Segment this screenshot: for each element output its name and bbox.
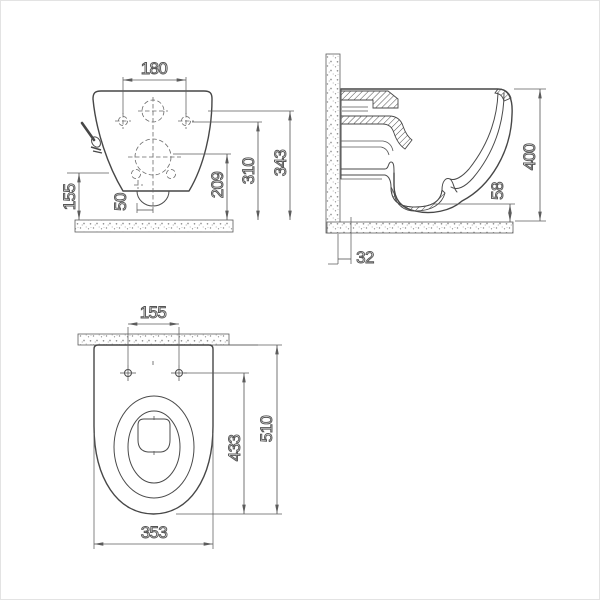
side-bowl-inner-curve-2	[450, 93, 498, 180]
dim-label-310: 310	[239, 158, 258, 185]
front-floor-section	[75, 220, 233, 232]
side-section-view: 400 58 32	[326, 54, 546, 267]
dim-label-155-front: 155	[60, 184, 79, 211]
side-hatch-trap-bottom	[391, 187, 445, 211]
dim-label-433: 433	[225, 435, 244, 462]
front-view: 180 155 50 209 310 343	[60, 59, 294, 232]
front-fixing-hole-right	[178, 113, 194, 129]
side-bowl-inner-curve	[451, 93, 504, 189]
front-flush-lever	[82, 123, 102, 153]
dim-label-510: 510	[257, 416, 276, 443]
plan-wall-section	[78, 334, 229, 345]
dim-label-353: 353	[141, 523, 168, 542]
toilet-technical-drawing-canvas: 180 155 50 209 310 343	[1, 1, 600, 601]
dim-label-180: 180	[141, 59, 168, 78]
side-channel-lower	[341, 175, 391, 187]
front-dim-155: 155	[60, 173, 109, 220]
dim-label-343: 343	[271, 150, 290, 177]
side-dim-400: 400	[514, 89, 546, 221]
dim-label-400: 400	[520, 144, 539, 171]
plan-bowl-outline	[94, 345, 213, 514]
plan-view: 155 510 433 353	[78, 303, 282, 549]
side-hatch-top-block	[341, 91, 398, 108]
dim-label-50: 50	[111, 193, 130, 211]
dim-label-32: 32	[356, 248, 374, 267]
front-seat-fixing-left	[132, 170, 141, 179]
side-channel-top-a	[341, 141, 393, 151]
side-channel-hook	[341, 162, 394, 173]
side-channel-top-b	[341, 147, 389, 155]
dim-label-209: 209	[208, 172, 227, 199]
plan-flush-opening	[138, 419, 170, 452]
side-floor-section	[327, 222, 513, 233]
side-wall-section	[326, 54, 340, 233]
side-bowl-outer-profile	[341, 89, 512, 213]
front-bowl-outline	[93, 91, 212, 191]
front-fixing-hole-left	[115, 113, 131, 129]
dim-label-58: 58	[488, 182, 507, 200]
plan-fixing-hole-left	[120, 365, 136, 381]
plan-bowl-rim	[128, 411, 180, 483]
front-dim-50: 50	[111, 193, 153, 213]
side-hatch-inlet-spout	[341, 116, 412, 149]
side-trap-weir	[442, 178, 457, 192]
front-seat-fixing-right	[167, 170, 176, 179]
dim-label-155-plan: 155	[140, 303, 167, 322]
technical-drawing-page: 180 155 50 209 310 343	[0, 0, 600, 600]
front-dim-180: 180	[123, 59, 186, 114]
side-dim-58: 58	[431, 182, 515, 222]
